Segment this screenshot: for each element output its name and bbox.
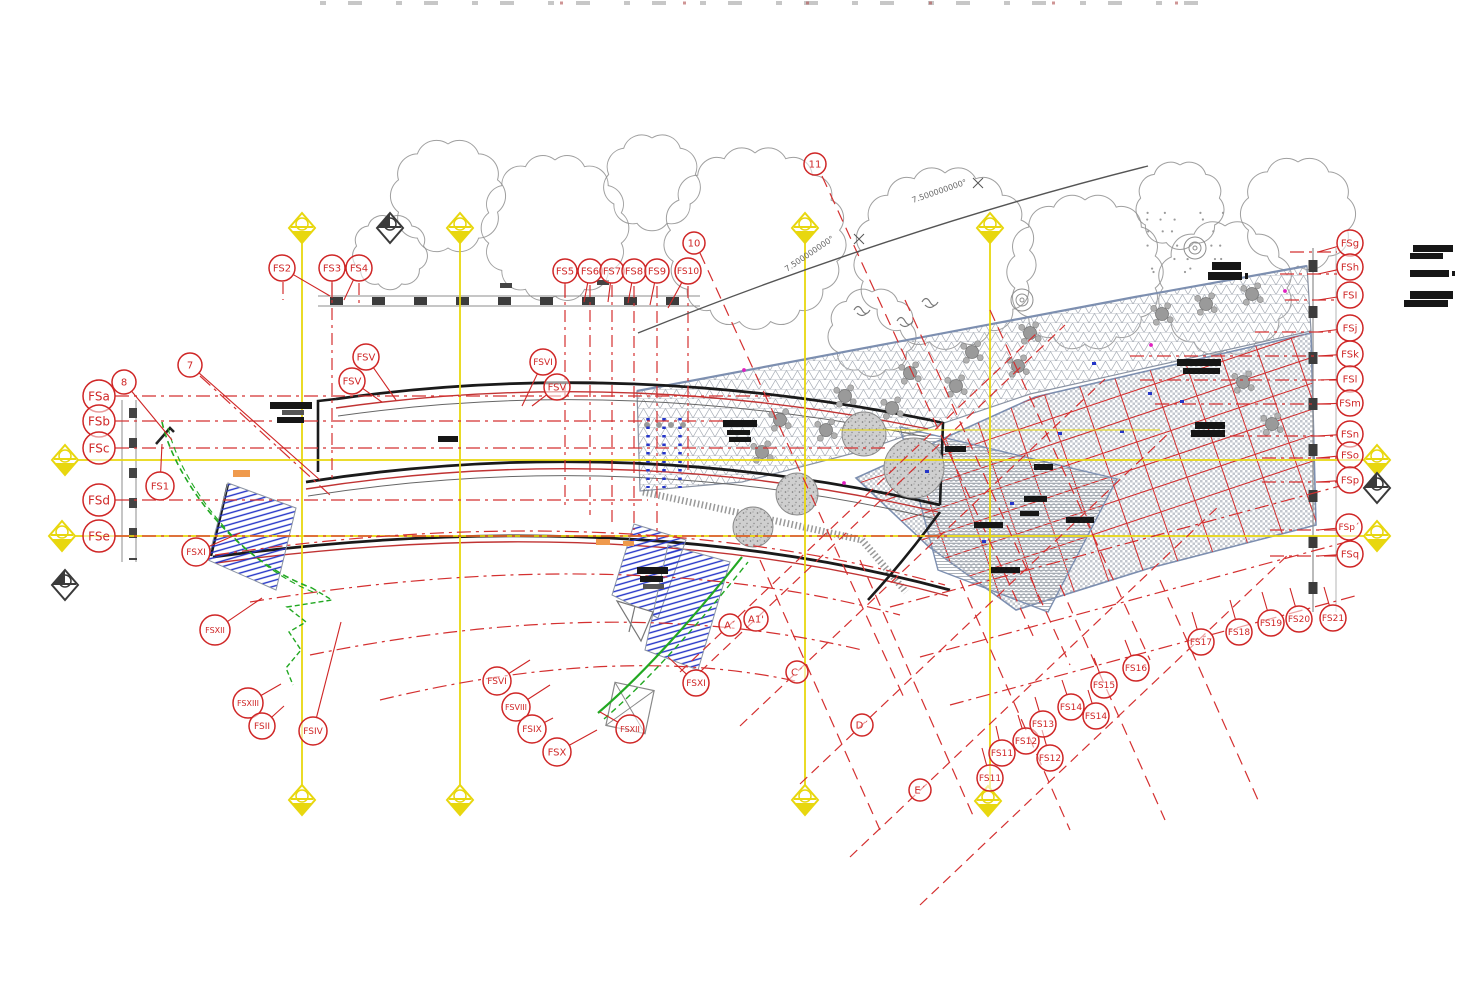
illegible-text-block [1066,517,1094,523]
curved-wall [213,536,950,590]
illegible-text-block [723,420,757,427]
ground-speckle [1176,245,1178,247]
callout-FSk: FSk [1318,341,1363,367]
cad-drawing-viewport[interactable]: 7.500000000°7.500000000° FS2FS3FS4FS5FS6… [0,0,1478,988]
illegible-text-block [277,417,304,423]
callout-leader [509,660,530,673]
fixture-dot [668,422,674,428]
illegible-text-block [270,402,312,409]
illegible-text-block [1410,291,1453,299]
callout-label: 8 [121,378,127,389]
ground-speckle [1199,212,1201,214]
shrub-spiral [1011,289,1033,311]
illegible-text-block [1177,359,1221,366]
dimension-label: 7.500000000° [911,178,968,205]
callout-label: FS18 [1228,628,1250,638]
illegible-text-block [438,436,458,442]
callout-label: FSVI [533,358,553,368]
callout-FSIX: FSIX [518,715,553,743]
callout-label: FS9 [648,267,666,278]
callout-label: 10 [688,239,701,250]
magenta-point [842,481,846,485]
callout-label: FSq [1341,550,1359,561]
illegible-text-block [1413,245,1453,252]
callout-label: C´ [791,667,803,679]
callout-label: FS2 [273,264,291,275]
illegible-text-block [1245,273,1248,279]
ground-speckle [1159,218,1161,220]
callout-label: FSg [1341,239,1359,250]
illegible-text-block [945,446,966,452]
callout-label: 7 [187,361,193,372]
leaf-glyph [854,307,870,316]
callout-label: FSp [1341,476,1359,487]
blue-fixture [1010,502,1014,505]
callout-8: 8 [112,370,172,440]
callout-E´: E´ [909,779,931,801]
callout-leader [1318,355,1337,356]
callout-label: FSV [343,377,362,388]
callout-label: FSn [1341,430,1359,441]
callout-label: FS7 [603,267,621,278]
callout-leader [1262,592,1267,611]
blue-fixture [1180,400,1184,403]
north-marker-gray [1364,473,1390,503]
callout-label: FSXIII [237,699,259,708]
callout-leader [261,684,281,696]
callout-label: FSj [1343,324,1358,335]
red-diagonal-a [960,580,1070,830]
tree-canopy-outline [1240,158,1355,269]
callout-label: FS21 [1322,614,1344,624]
callout-label: FSII [254,722,270,732]
callout-FS4: FS4 [344,255,372,300]
illegible-text-block [729,437,751,442]
callout-label: FS13 [1032,720,1054,730]
ground-speckle [1222,212,1224,214]
grid-marker-yellow [52,445,78,475]
ground-speckle [1186,258,1188,260]
callout-leader [1318,379,1337,380]
callout-label: FSd [88,493,110,507]
grid-marker-yellow [447,785,473,815]
callout-label: FS14 [1060,703,1082,713]
grid-marker-yellow [49,521,75,551]
callout-leader [373,368,396,400]
callout-leader [1290,588,1295,607]
callout-FSIV: FSIV [299,622,341,745]
callout-label: FSXI [686,679,706,689]
callout-label: FSXII [620,725,640,734]
grid-marker-yellow [977,213,1003,243]
callout-leader [569,730,597,745]
wall-end-cap [868,512,940,600]
callout-FS13: FS13 [1030,697,1056,737]
callout-label: FSI [1343,291,1358,302]
tree-canopy-outline [604,135,701,231]
blue-fixture [925,470,929,473]
callout-label: FS20 [1288,615,1310,625]
callout-FSXII: FSXII [200,598,262,645]
blue-fixture [1092,362,1096,365]
callout-label: A1' [748,615,764,626]
illegible-text-block [637,567,668,574]
ground-speckle [1146,218,1148,220]
round-planter-fill [776,473,818,515]
callout-label: FS11 [991,749,1013,759]
callout-label: FSb [88,414,110,428]
shrub-spiral [1189,242,1201,254]
callout-leader [1318,481,1337,482]
ground-speckle [1210,245,1212,247]
callout-FS19: FS19 [1258,592,1284,636]
ground-speckle [1151,267,1153,269]
red-arc [310,622,862,655]
callout-label: FS12 [1015,737,1037,747]
callout-leader [1088,690,1092,704]
orange-highlight [233,470,250,477]
callout-FSVI: FSVI [483,660,530,695]
callout-leader [132,391,172,440]
callout-FS16: FS16 [1123,640,1149,681]
callout-label: FSk [1341,350,1359,361]
ground-speckle [1146,244,1148,246]
callout-leader [1035,697,1039,712]
callout-label: FS16 [1125,664,1147,674]
leaf-glyph [922,299,938,308]
callout-C´: C´ [786,661,808,683]
callout-FSp: FSp [1318,467,1363,493]
callout-FS9: FS9 [645,259,669,305]
callout-label: 11 [809,160,822,171]
callout-leader [1125,640,1131,656]
callout-label: FS17 [1190,638,1212,648]
callout-label: FSIV [303,727,323,737]
callout-FS5: FS5 [553,259,577,298]
callout-FSo: FSo [1318,442,1363,468]
callout-FSI: FSI [1318,282,1363,308]
callout-leader [1318,270,1337,274]
callout-leader [982,748,987,765]
ground-speckle [1162,230,1164,232]
illegible-text-block [500,283,512,288]
magenta-point [742,368,746,372]
callout-leader [1318,297,1337,300]
callout-FSV: FSV [532,374,570,406]
illegible-text-block [1034,464,1053,470]
illegible-text-block [1452,271,1455,276]
illegible-text-block [727,430,750,435]
grid-marker-yellow [447,213,473,243]
red-arc [215,531,945,585]
callout-label: FSp´ [1339,522,1360,533]
callout-leader [1318,247,1337,252]
callout-D´: D´ [851,714,873,736]
callout-leader [1018,715,1022,729]
wall-end-cap [318,399,336,472]
illegible-text-block [974,522,1003,528]
callout-FSX: FSX [543,730,597,766]
callout-label: FSa [88,389,110,403]
floor-plan-canvas: 7.500000000°7.500000000° FS2FS3FS4FS5FS6… [0,0,1478,988]
callout-label: FSe [88,529,110,543]
callout-leader [272,706,284,717]
illegible-text-block [1410,270,1449,277]
callout-FSl: FSl [1318,366,1363,392]
ground-speckle [1184,271,1186,273]
callout-label: FSm [1339,399,1361,410]
callout-label: FS3 [323,264,341,275]
callout-leader [1324,587,1329,606]
callout-FSm: FSm [1318,390,1363,416]
callout-FS1: FS1 [146,444,174,500]
illegible-text-block [1195,422,1225,429]
dimension-tick [973,178,983,188]
callout-label: FS19 [1260,619,1282,629]
callout-label: FSV [548,383,567,394]
callout-FSc: FSc [83,432,115,464]
illegible-text-block [643,584,664,589]
ground-speckle [1173,258,1175,260]
callout-FSq: FSq [1318,541,1363,567]
callout-label: FS10 [677,267,699,277]
callout-label: E´ [914,785,925,797]
ground-speckle [1171,230,1173,232]
callout-10: 10 [683,232,705,254]
grid-marker-yellow [1364,521,1390,551]
callout-label: FSX [548,748,567,759]
callout-label: FS14 [1085,712,1107,722]
landscape-edge [286,588,332,685]
illegible-text-block [1020,511,1039,516]
callout-label: FS8 [625,267,643,278]
leaf-glyph [897,318,913,327]
curved-wall-red-face [306,469,938,512]
callout-FSh: FSh [1318,254,1363,280]
callout-label: A´ [724,620,736,632]
illegible-text-block [1191,430,1225,437]
ground-speckle [1152,271,1154,273]
callout-label: FSV [357,353,376,364]
callout-7: 7 [178,353,320,480]
callout-FSe: FSe [83,520,115,552]
callout-leader [1318,403,1337,404]
blue-fixture [982,540,986,543]
ground-speckle [1214,258,1216,260]
ground-speckle [1189,267,1191,269]
red-diagonal-a [760,560,880,830]
callout-leader [1230,600,1235,619]
callout-label: FSo [1341,451,1359,462]
callout-FS21: FS21 [1320,587,1346,631]
callout-leader [996,726,999,740]
callout-label: FSc [89,441,110,455]
grid-marker-yellow [289,213,315,243]
blue-fixture [1148,392,1152,395]
callout-label: FS4 [350,264,368,275]
illegible-text-block [1208,272,1242,280]
red-arc [250,574,900,615]
callout-leader [544,718,553,723]
grid-marker-yellow [289,785,315,815]
round-planter-fill [733,507,773,547]
ground-speckle [1164,212,1166,214]
ground-speckle [1146,212,1148,214]
magenta-point [1283,289,1287,293]
magenta-point [1149,343,1153,347]
callout-FS17: FS17 [1188,612,1214,655]
ground-speckle [1220,258,1222,260]
ground-speckle [1212,230,1214,232]
orange-highlight [623,541,634,546]
callout-11: 11 [804,153,826,175]
callout-label: FS6 [581,267,599,278]
callout-FS14: FS14 [1058,680,1084,720]
callout-label: FSl [1343,375,1358,386]
callout-label: D´ [856,720,869,732]
callout-label: FSIX [522,725,542,735]
round-planter-fill [842,412,886,456]
illegible-text-block [1024,496,1047,502]
red-diagonal-a [1160,580,1258,800]
illegible-text-block [1183,368,1220,374]
north-marker-gray [52,570,78,600]
ground-speckle [1202,218,1204,220]
callout-label: FSh [1341,263,1359,274]
shrub-spiral [1020,298,1024,302]
ground-speckle [1219,245,1221,247]
ground-speckle [1147,230,1149,232]
callout-FSXIII: FSXIII [233,684,281,718]
illegible-text-block [991,567,1020,573]
callout-leader [1094,658,1099,673]
curved-wall-inner [308,476,936,519]
callout-label: FS5 [556,267,574,278]
callout-label: FS11 [979,774,1001,784]
grid-marker-yellow [792,213,818,243]
callout-label: FS12 [1039,754,1061,764]
callout-leader [316,622,341,717]
callout-leader [161,444,162,472]
callout-label: FSXI [186,548,206,558]
callout-FSj: FSj [1318,315,1363,341]
callout-FS20: FS20 [1286,588,1312,632]
callout-label: FSVIII [505,703,527,712]
callout-label: FS15 [1093,681,1115,691]
callout-leader [608,283,610,302]
callout-label: FSXII [205,626,225,635]
callout-leader [1318,435,1337,436]
illegible-text-block [1404,300,1448,307]
red-arc [380,666,800,700]
callout-leader [650,283,655,305]
callout-leader [528,685,550,699]
shrub-spiral [1193,246,1197,250]
callout-leader [1318,330,1337,332]
callout-A´: A´ [719,614,741,636]
illegible-text-block [640,576,663,582]
curved-wall-red-face [216,542,948,596]
callout-A1': A1' [744,607,768,631]
wall-stub [156,428,174,444]
red-arc [200,376,330,495]
callout-FS11: FS11 [989,726,1015,766]
dimension-tick [854,234,864,244]
illegible-text-block [282,410,304,415]
blue-fixture [1058,432,1062,435]
callout-FSd: FSd [83,484,115,516]
callout-label: FSVI [487,677,507,687]
callout-leader [227,598,262,622]
callout-leader [1062,680,1067,695]
ground-speckle [1174,218,1176,220]
grid-marker-yellow [792,785,818,815]
callout-FS18: FS18 [1226,600,1252,645]
illegible-text-block [1212,262,1241,270]
north-marker-gray [377,213,403,243]
callout-label: FS1 [151,482,169,493]
grid-marker-yellow [1364,445,1390,475]
red-section-line [920,553,1290,905]
callout-leader [344,280,353,300]
callout-leader [522,374,537,406]
orange-highlight [596,539,610,545]
callout-leader [1192,612,1197,630]
tree-canopy-outline [1136,162,1224,249]
illegible-text-block [1410,253,1443,259]
